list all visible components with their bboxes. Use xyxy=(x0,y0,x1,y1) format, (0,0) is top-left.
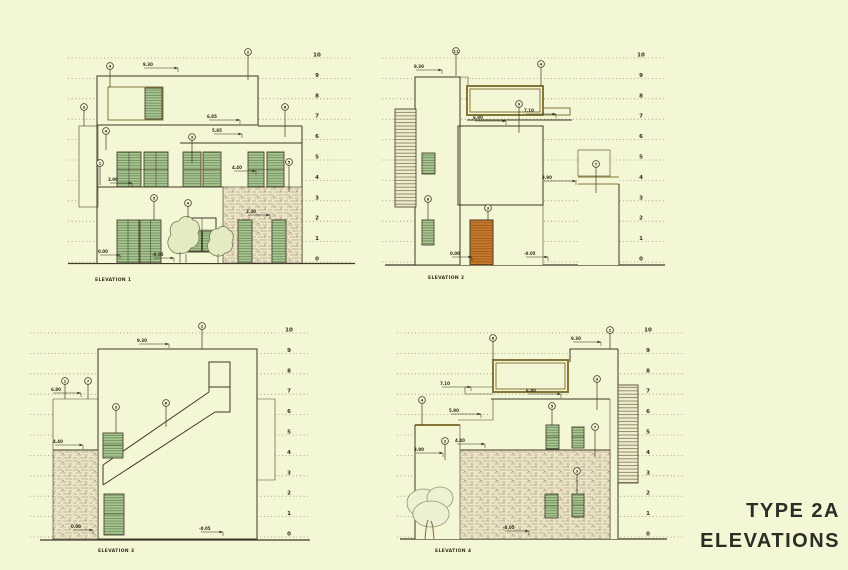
svg-text:4: 4 xyxy=(105,128,108,133)
penthouse-shutter xyxy=(145,88,162,119)
level-number: 5 xyxy=(315,155,319,161)
elevation-2-drawing: 012345678910 9 xyxy=(380,40,670,305)
svg-text:6: 6 xyxy=(284,104,287,109)
elevation-label: ELEVATION 1 xyxy=(95,277,131,283)
svg-text:4: 4 xyxy=(540,61,543,66)
louver-screen xyxy=(395,109,416,207)
elevation-label: ELEVATION 2 xyxy=(428,275,464,281)
svg-text:4.40: 4.40 xyxy=(455,438,465,443)
svg-text:3: 3 xyxy=(83,104,86,109)
level-number: 8 xyxy=(315,93,319,99)
svg-text:9.30: 9.30 xyxy=(414,64,424,69)
louver-screen xyxy=(618,385,638,483)
svg-text:9.30: 9.30 xyxy=(143,62,153,67)
level-number: 9 xyxy=(287,348,291,354)
svg-text:2: 2 xyxy=(247,49,250,54)
svg-text:3: 3 xyxy=(115,404,118,409)
stone-wall xyxy=(223,187,302,263)
level-number: 4 xyxy=(646,450,650,456)
level-number: 10 xyxy=(313,53,321,59)
svg-text:0.00: 0.00 xyxy=(98,249,108,254)
svg-text:3.90: 3.90 xyxy=(414,447,424,452)
svg-text:3: 3 xyxy=(191,134,194,139)
elevation-3-drawing: 012345678910 9.30 6.80 4.40 0.00 xyxy=(25,315,315,565)
elevation-label: ELEVATION 4 xyxy=(435,548,471,554)
level-number: 2 xyxy=(287,491,291,497)
level-number: 8 xyxy=(287,368,291,374)
svg-text:-0.05: -0.05 xyxy=(199,526,211,531)
level-number: 5 xyxy=(287,430,291,436)
level-number: 3 xyxy=(287,470,291,476)
level-number: 3 xyxy=(315,195,319,201)
svg-text:5: 5 xyxy=(551,403,554,408)
level-number: 7 xyxy=(315,114,319,120)
svg-text:5: 5 xyxy=(288,159,291,164)
sheet-title-line2: ELEVATIONS xyxy=(700,526,840,556)
svg-text:7.10: 7.10 xyxy=(524,108,534,113)
svg-text:7: 7 xyxy=(87,378,90,383)
dimension: 9.30 xyxy=(414,64,442,74)
sheet-title-line1: TYPE 2A xyxy=(700,496,840,526)
level-number: 3 xyxy=(646,470,650,476)
entry-door xyxy=(470,220,493,265)
svg-text:3.90: 3.90 xyxy=(542,175,552,180)
svg-text:7: 7 xyxy=(595,161,598,166)
svg-text:7: 7 xyxy=(594,424,597,429)
dimension: 7.10 xyxy=(440,381,471,391)
svg-text:6.85: 6.85 xyxy=(207,114,217,119)
svg-text:2: 2 xyxy=(609,327,612,332)
svg-text:3: 3 xyxy=(487,205,490,210)
svg-text:2: 2 xyxy=(444,438,447,443)
level-number: 4 xyxy=(315,175,319,181)
svg-text:11: 11 xyxy=(453,48,459,53)
dimension: 5.90 xyxy=(449,408,481,418)
svg-text:4.40: 4.40 xyxy=(53,439,63,444)
svg-text:4.40: 4.40 xyxy=(232,165,242,170)
level-number: 8 xyxy=(646,368,650,374)
level-number: 9 xyxy=(315,73,319,79)
callout: 11 xyxy=(453,48,460,76)
svg-text:1: 1 xyxy=(64,378,67,383)
level-number: 1 xyxy=(646,511,650,517)
level-number: 0 xyxy=(639,257,643,263)
svg-text:5: 5 xyxy=(153,195,156,200)
level-number: 1 xyxy=(287,511,291,517)
callout: 7 xyxy=(85,378,92,399)
dimension: 6.80 xyxy=(51,387,81,397)
level-number: 6 xyxy=(315,134,319,140)
svg-text:7.10: 7.10 xyxy=(440,381,450,386)
elevation-label: ELEVATION 3 xyxy=(98,548,134,554)
level-number: 9 xyxy=(646,348,650,354)
svg-text:0.00: 0.00 xyxy=(71,524,81,529)
callout: 4 xyxy=(538,61,545,86)
svg-text:9: 9 xyxy=(518,101,521,106)
level-number: 10 xyxy=(285,328,293,334)
sheet-title: TYPE 2A ELEVATIONS xyxy=(700,496,840,556)
level-number: 0 xyxy=(646,532,650,538)
svg-text:6.80: 6.80 xyxy=(51,387,61,392)
svg-text:9: 9 xyxy=(596,376,599,381)
svg-text:-0.05: -0.05 xyxy=(524,251,536,256)
level-number: 0 xyxy=(287,532,291,538)
elevation-1-drawing: 012345678910 xyxy=(60,40,360,305)
level-number: 1 xyxy=(639,236,643,242)
level-number: 7 xyxy=(287,389,291,395)
dimension: 9.30 xyxy=(137,338,169,348)
level-number: 9 xyxy=(639,73,643,79)
svg-text:4: 4 xyxy=(109,63,112,68)
drawing-sheet: 012345678910 xyxy=(0,0,848,570)
level-number: 3 xyxy=(639,195,643,201)
svg-text:0.00: 0.00 xyxy=(450,251,460,256)
level-number: 5 xyxy=(639,155,643,161)
svg-text:9.30: 9.30 xyxy=(137,338,147,343)
svg-text:9.30: 9.30 xyxy=(571,336,581,341)
level-number: 4 xyxy=(639,175,643,181)
svg-text:1: 1 xyxy=(99,160,102,165)
svg-text:5.90: 5.90 xyxy=(449,408,459,413)
level-number: 1 xyxy=(315,236,319,242)
svg-text:3.90: 3.90 xyxy=(108,177,118,182)
level-number: 2 xyxy=(315,216,319,222)
dimension: 9.30 xyxy=(571,336,601,346)
callout: 2 xyxy=(607,327,614,349)
level-number: 8 xyxy=(639,93,643,99)
level-number: 4 xyxy=(287,450,291,456)
level-number: 6 xyxy=(639,134,643,140)
level-number: 6 xyxy=(287,409,291,415)
svg-text:5.85: 5.85 xyxy=(212,128,222,133)
callout: 2 xyxy=(245,49,252,80)
dimension: 9.30 xyxy=(143,62,178,72)
svg-text:2: 2 xyxy=(201,323,204,328)
level-number: 7 xyxy=(646,389,650,395)
level-number: 7 xyxy=(639,114,643,120)
callout: 6 xyxy=(490,335,497,360)
level-number: 2 xyxy=(639,216,643,222)
level-number: 10 xyxy=(644,328,652,334)
svg-text:3: 3 xyxy=(576,468,579,473)
svg-text:6: 6 xyxy=(492,335,495,340)
svg-text:6: 6 xyxy=(165,400,168,405)
callout: 2 xyxy=(199,323,206,349)
level-number: 10 xyxy=(637,53,645,59)
level-number: 2 xyxy=(646,491,650,497)
svg-text:8: 8 xyxy=(427,196,430,201)
level-number: 6 xyxy=(646,409,650,415)
level-number: 5 xyxy=(646,430,650,436)
svg-text:4: 4 xyxy=(187,200,190,205)
callout: 1 xyxy=(62,378,69,399)
svg-text:-0.05: -0.05 xyxy=(503,525,515,530)
stone-wall xyxy=(460,450,610,539)
svg-text:4: 4 xyxy=(421,397,424,402)
callout: 3 xyxy=(81,104,88,126)
svg-text:6.80: 6.80 xyxy=(526,388,536,393)
level-number: 0 xyxy=(315,257,319,263)
svg-text:6.80: 6.80 xyxy=(473,115,483,120)
callout: 4 xyxy=(419,397,426,425)
svg-text:2.30: 2.30 xyxy=(246,209,256,214)
elevation-4-drawing: 012345678910 xyxy=(395,315,690,565)
svg-text:-0.05: -0.05 xyxy=(152,252,164,257)
